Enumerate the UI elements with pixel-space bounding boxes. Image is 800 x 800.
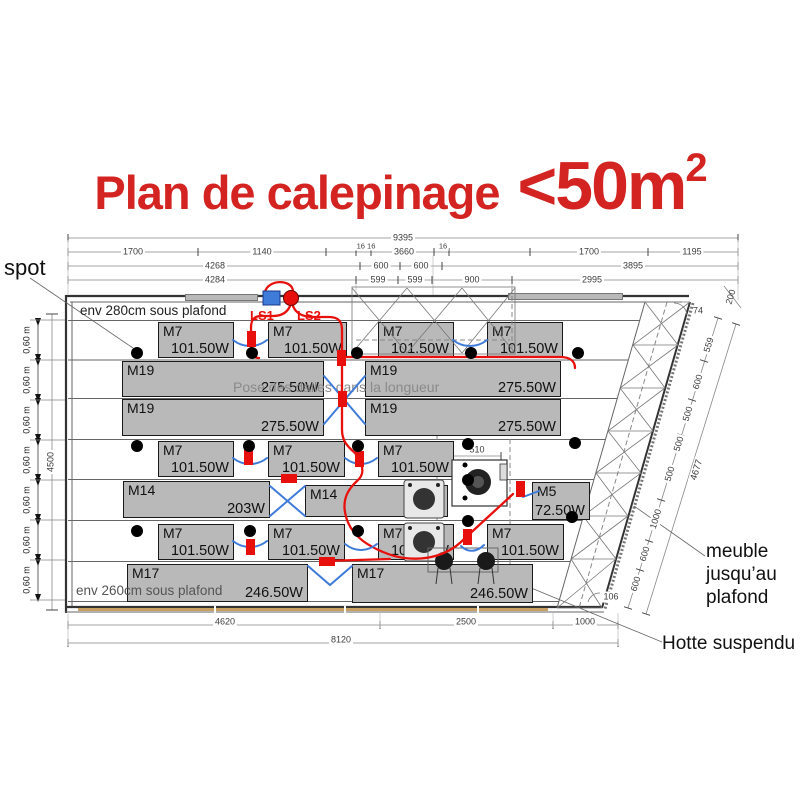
spot-light — [462, 438, 474, 450]
spot-light — [462, 474, 474, 486]
spot-light — [244, 525, 256, 537]
spot-light — [572, 347, 584, 359]
spot-light — [569, 437, 581, 449]
plan-linework-overlay — [0, 0, 800, 800]
spot-light — [462, 515, 474, 527]
floor-plan-page: Plan de calepinage <50m2 M7 101.50W M7 1… — [0, 0, 800, 800]
switch-ls1-icon — [263, 291, 280, 305]
cooktop-icon — [404, 480, 444, 518]
sink-icon — [452, 460, 507, 506]
spot-light — [131, 525, 143, 537]
spot-light — [463, 463, 468, 468]
switch-ls2-icon — [284, 291, 299, 306]
spot-light — [351, 347, 363, 359]
spot-light — [352, 525, 364, 537]
spot-light — [463, 496, 468, 501]
wiring-red — [251, 282, 575, 561]
spot-light — [243, 440, 255, 452]
spot-light — [566, 511, 578, 523]
spot-light — [352, 440, 364, 452]
wire-connectors — [244, 331, 525, 566]
spot-light — [246, 347, 258, 359]
wardrobe-cabinet — [352, 287, 515, 354]
spot-light — [131, 440, 143, 452]
spot-light — [465, 347, 477, 359]
spot-light — [131, 347, 143, 359]
